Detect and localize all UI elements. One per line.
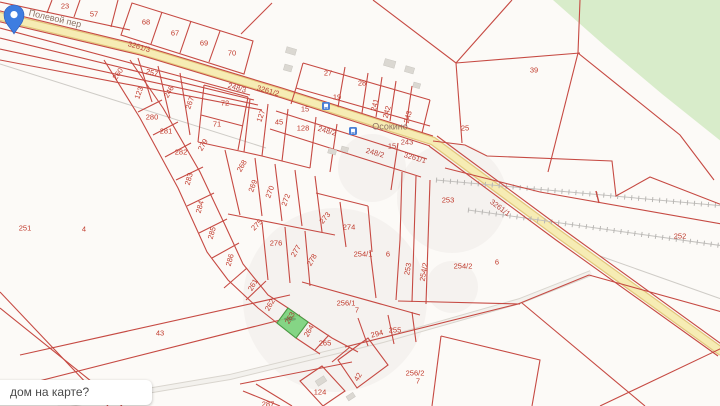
forest-area [553,0,720,142]
location-pin[interactable] [0,0,28,36]
watermark [243,134,507,392]
pin-shadow [284,317,296,321]
map-canvas[interactable]: 2357686769703261/3248/33261/227281915392… [0,0,720,406]
bus-stop-icon[interactable] [349,127,357,135]
find-house-tooltip[interactable]: дом на карте? [0,380,152,405]
bus-stop-icon[interactable] [322,102,330,110]
